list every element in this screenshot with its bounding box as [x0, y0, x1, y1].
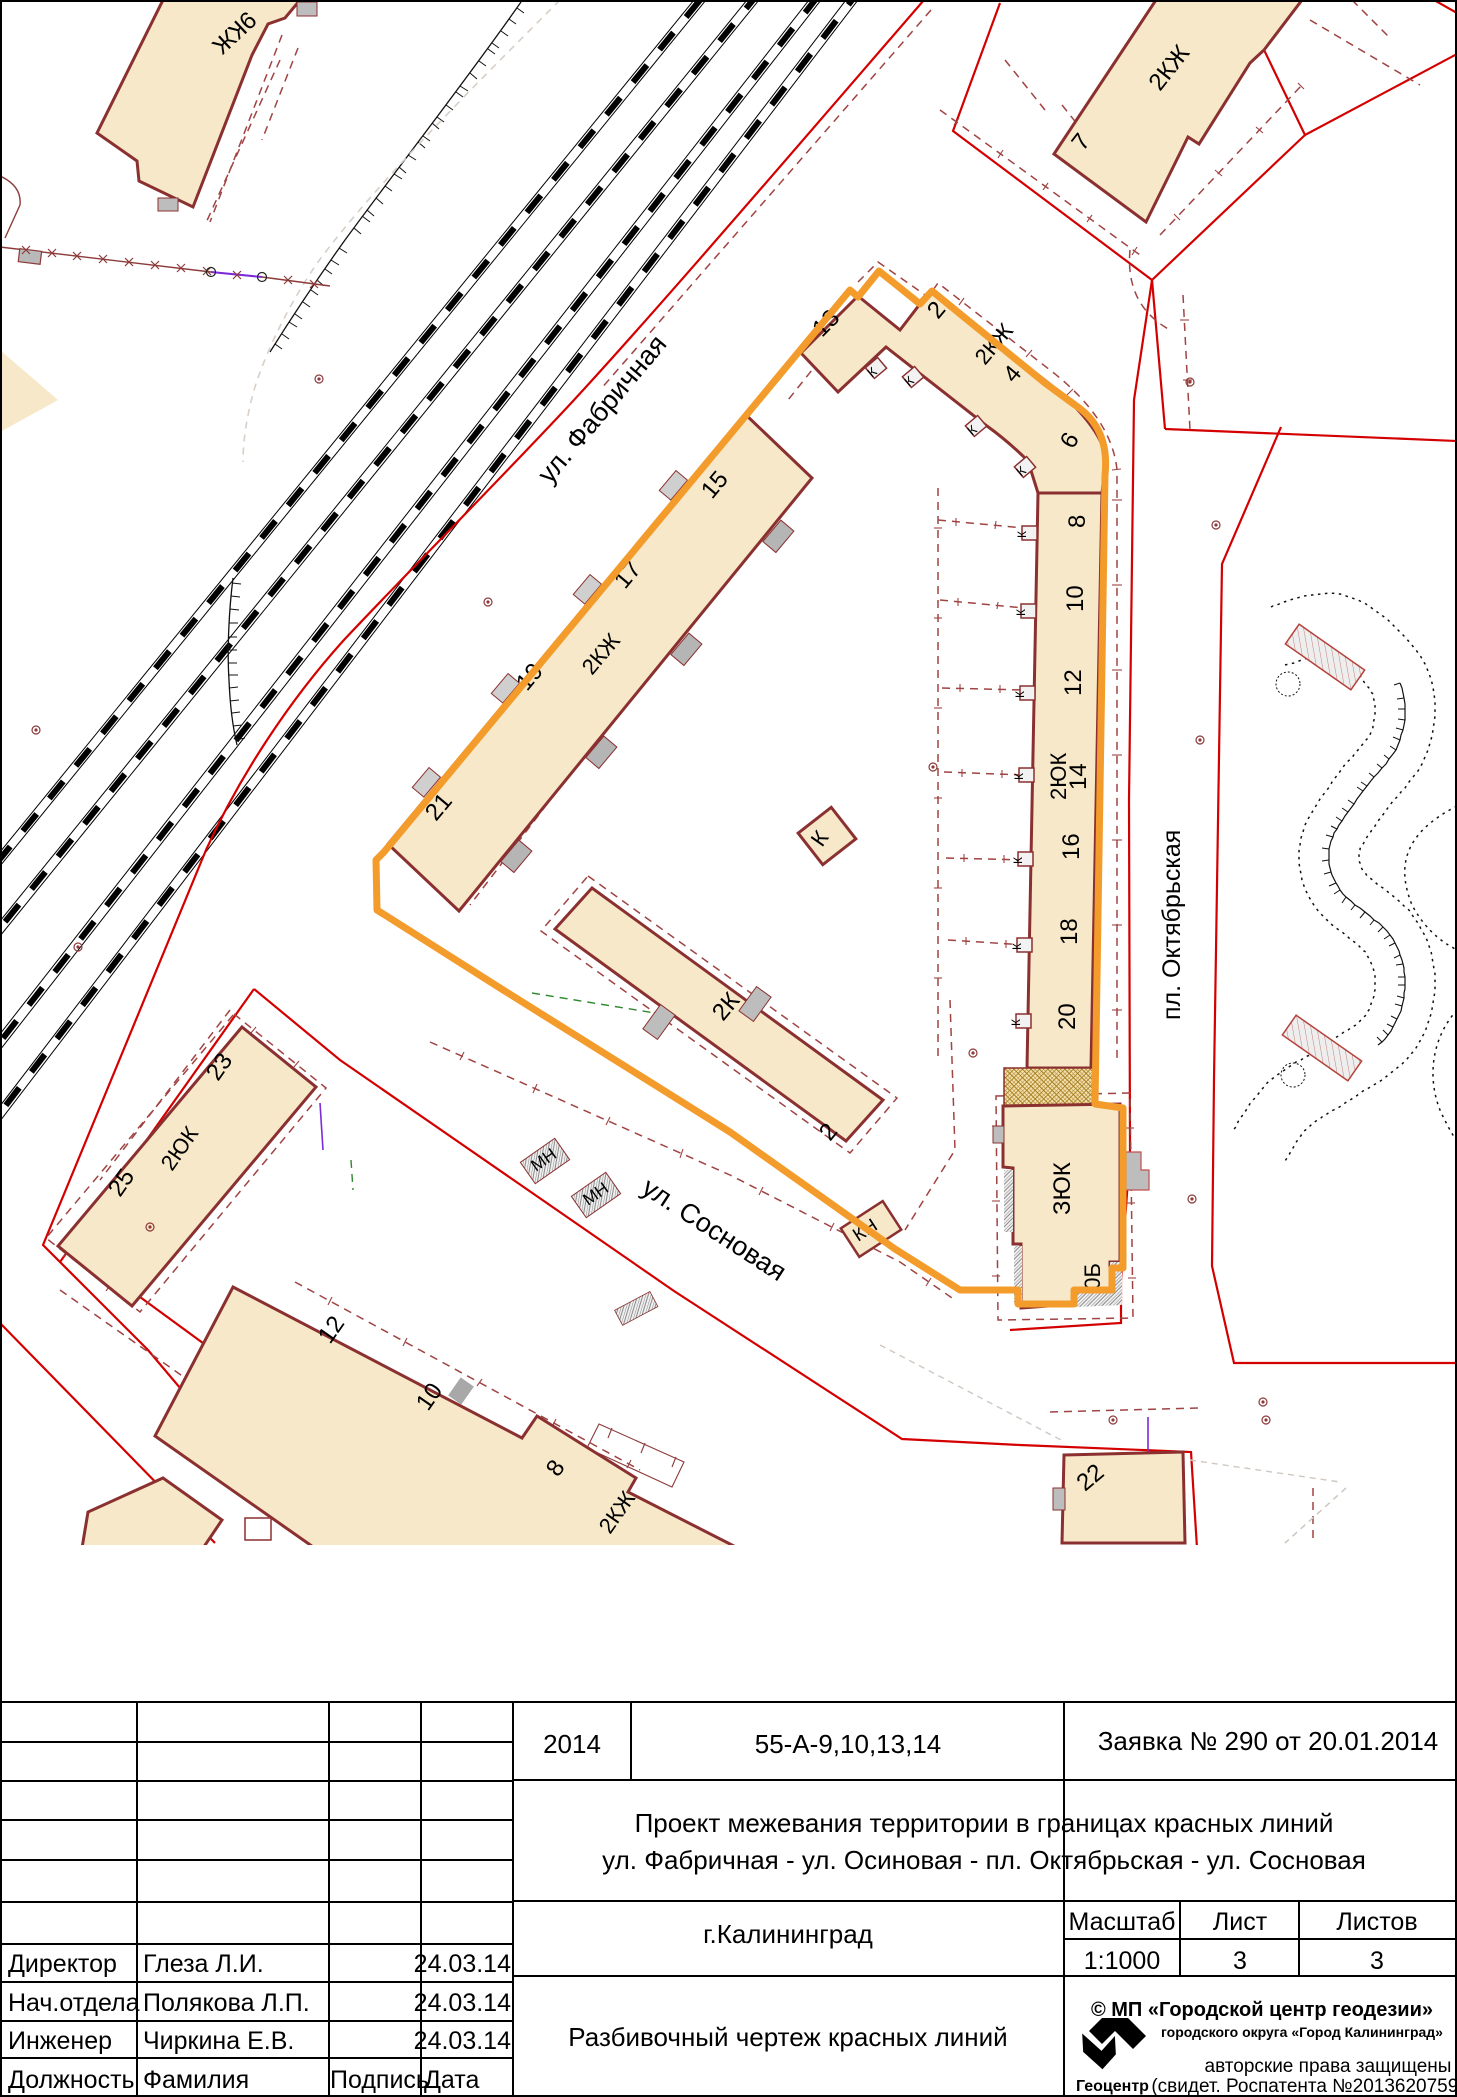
svg-text:© МП «Городской центр геодезии: © МП «Городской центр геодезии»	[1091, 1999, 1433, 2021]
svg-text:городского округа «Город Калин: городского округа «Город Калининград»	[1161, 2024, 1443, 2040]
svg-text:ЗЮК: ЗЮК	[1049, 1162, 1076, 1215]
svg-text:К: К	[1015, 531, 1029, 538]
svg-text:Заявка № 290 от 20.01.2014: Заявка № 290 от 20.01.2014	[1098, 1726, 1439, 1756]
svg-text:16: 16	[1058, 833, 1085, 860]
svg-text:К: К	[1011, 857, 1025, 864]
svg-text:К: К	[1013, 691, 1027, 698]
svg-text:18: 18	[1056, 918, 1083, 945]
svg-text:24.03.14: 24.03.14	[414, 1989, 511, 2017]
svg-text:3: 3	[1370, 1947, 1384, 1975]
svg-text:Дата: Дата	[424, 2066, 479, 2094]
svg-text:Полякова Л.П.: Полякова Л.П.	[143, 1989, 310, 2017]
svg-text:К: К	[1014, 609, 1028, 616]
svg-text:Чиркина Е.В.: Чиркина Е.В.	[143, 2027, 294, 2055]
svg-text:12: 12	[1060, 669, 1087, 696]
svg-text:К: К	[1010, 943, 1024, 950]
svg-text:Геоцентр: Геоцентр	[1076, 2078, 1149, 2095]
svg-text:Директор: Директор	[8, 1950, 117, 1978]
svg-text:Лист: Лист	[1213, 1908, 1268, 1936]
svg-text:Листов: Листов	[1336, 1908, 1417, 1936]
svg-text:К: К	[1009, 1019, 1023, 1026]
svg-text:Проект межевания территории в: Проект межевания территории в границах к…	[635, 1808, 1334, 1838]
svg-text:24.03.14: 24.03.14	[414, 1950, 511, 1978]
svg-text:Масштаб: Масштаб	[1069, 1908, 1176, 1936]
svg-text:Инженер: Инженер	[8, 2027, 112, 2055]
svg-text:1:1000: 1:1000	[1084, 1947, 1160, 1975]
svg-text:2014: 2014	[543, 1729, 601, 1759]
svg-text:г.Калининград: г.Калининград	[703, 1919, 873, 1949]
svg-text:пл. Октябрьская: пл. Октябрьская	[1158, 830, 1186, 1020]
svg-text:3: 3	[1233, 1947, 1247, 1975]
svg-text:(свидет. Роспатента №201362075: (свидет. Роспатента №2013620759)	[1151, 2076, 1457, 2097]
svg-text:2ЮК: 2ЮК	[1046, 753, 1071, 800]
svg-text:Подпись: Подпись	[330, 2066, 429, 2094]
svg-text:55-А-9,10,13,14: 55-А-9,10,13,14	[755, 1729, 941, 1759]
svg-text:Фамилия: Фамилия	[143, 2066, 249, 2094]
svg-text:ул. Фабричная - ул. Осиновая -: ул. Фабричная - ул. Осиновая - пл. Октяб…	[602, 1845, 1366, 1875]
svg-text:10: 10	[1062, 585, 1089, 612]
svg-text:8: 8	[1064, 515, 1091, 528]
svg-text:К: К	[1012, 773, 1026, 780]
svg-text:авторские права защищены: авторские права защищены	[1205, 2056, 1452, 2077]
svg-text:24.03.14: 24.03.14	[414, 2027, 511, 2055]
svg-text:Разбивочный чертеж красных лин: Разбивочный чертеж красных линий	[568, 2022, 1007, 2052]
svg-text:Должность: Должность	[8, 2066, 135, 2094]
svg-text:Нач.отдела: Нач.отдела	[8, 1989, 140, 2017]
svg-text:Глеза Л.И.: Глеза Л.И.	[143, 1950, 264, 1978]
svg-text:20: 20	[1054, 1003, 1081, 1030]
